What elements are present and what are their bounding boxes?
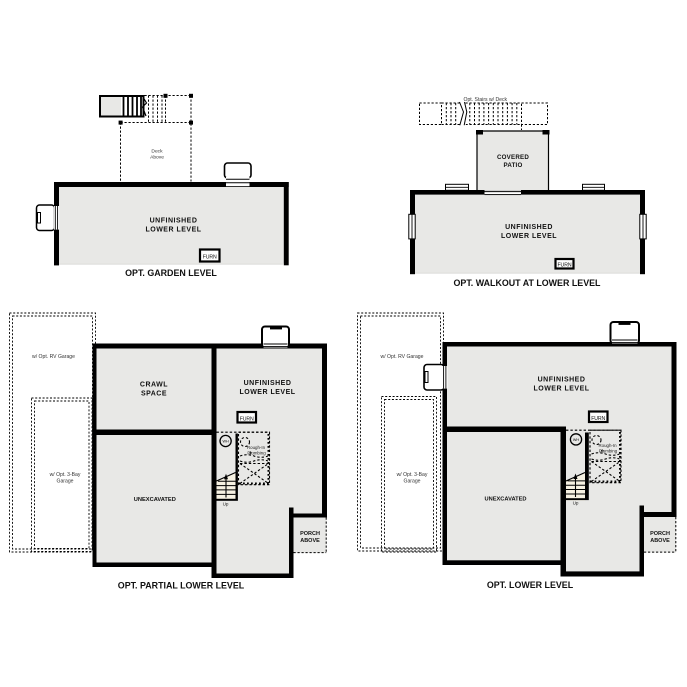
svg-text:LOWER LEVEL: LOWER LEVEL xyxy=(145,226,201,233)
svg-text:PORCH: PORCH xyxy=(300,531,320,537)
svg-text:PORCH: PORCH xyxy=(650,531,670,537)
svg-text:UNFINISHED: UNFINISHED xyxy=(244,380,292,387)
svg-text:COVERED: COVERED xyxy=(497,154,529,161)
svg-text:LOWER LEVEL: LOWER LEVEL xyxy=(533,385,589,392)
svg-text:FURN: FURN xyxy=(557,263,571,269)
svg-text:w/ Opt. 3-Bay: w/ Opt. 3-Bay xyxy=(397,472,428,478)
svg-text:Above: Above xyxy=(150,154,164,160)
svg-text:FURN: FURN xyxy=(203,255,217,261)
svg-text:SPACE: SPACE xyxy=(141,390,167,397)
svg-text:PATIO: PATIO xyxy=(504,162,523,169)
svg-text:UNEXCAVATED: UNEXCAVATED xyxy=(134,497,176,503)
svg-text:w/ Opt. RV Garage: w/ Opt. RV Garage xyxy=(381,354,424,360)
svg-text:Deck: Deck xyxy=(151,148,163,154)
svg-text:Garage: Garage xyxy=(404,479,421,485)
svg-text:OPT. WALKOUT AT LOWER LEVEL: OPT. WALKOUT AT LOWER LEVEL xyxy=(454,278,601,288)
svg-text:Garage: Garage xyxy=(57,479,74,485)
svg-text:OPT. GARDEN LEVEL: OPT. GARDEN LEVEL xyxy=(125,268,217,278)
svg-text:FURN: FURN xyxy=(240,416,254,422)
svg-text:LOWER LEVEL: LOWER LEVEL xyxy=(239,389,295,396)
svg-text:w/ Opt. 3-Bay: w/ Opt. 3-Bay xyxy=(50,472,81,478)
svg-text:LOWER LEVEL: LOWER LEVEL xyxy=(501,233,557,240)
svg-text:WH: WH xyxy=(223,440,229,444)
svg-text:CRAWL: CRAWL xyxy=(140,382,168,389)
svg-text:Rough-In: Rough-In xyxy=(598,443,617,448)
svg-text:w/ Opt. RV Garage: w/ Opt. RV Garage xyxy=(32,354,75,360)
svg-text:OPT. LOWER LEVEL: OPT. LOWER LEVEL xyxy=(487,580,574,590)
svg-text:ABOVE: ABOVE xyxy=(300,538,320,544)
svg-text:ABOVE: ABOVE xyxy=(650,538,670,544)
svg-text:OPT. PARTIAL LOWER LEVEL: OPT. PARTIAL LOWER LEVEL xyxy=(118,580,245,590)
svg-text:UNFINISHED: UNFINISHED xyxy=(538,377,586,384)
svg-text:UNFINISHED: UNFINISHED xyxy=(150,218,198,225)
svg-text:Rough-In: Rough-In xyxy=(247,445,266,450)
svg-text:WH: WH xyxy=(573,438,579,442)
svg-text:UNEXCAVATED: UNEXCAVATED xyxy=(484,496,526,502)
svg-text:FURN: FURN xyxy=(591,416,605,422)
svg-text:Up: Up xyxy=(573,500,579,505)
svg-text:Opt. Stairs w/ Deck: Opt. Stairs w/ Deck xyxy=(464,97,508,103)
svg-text:UNFINISHED: UNFINISHED xyxy=(505,224,553,231)
svg-text:Up: Up xyxy=(223,502,229,507)
